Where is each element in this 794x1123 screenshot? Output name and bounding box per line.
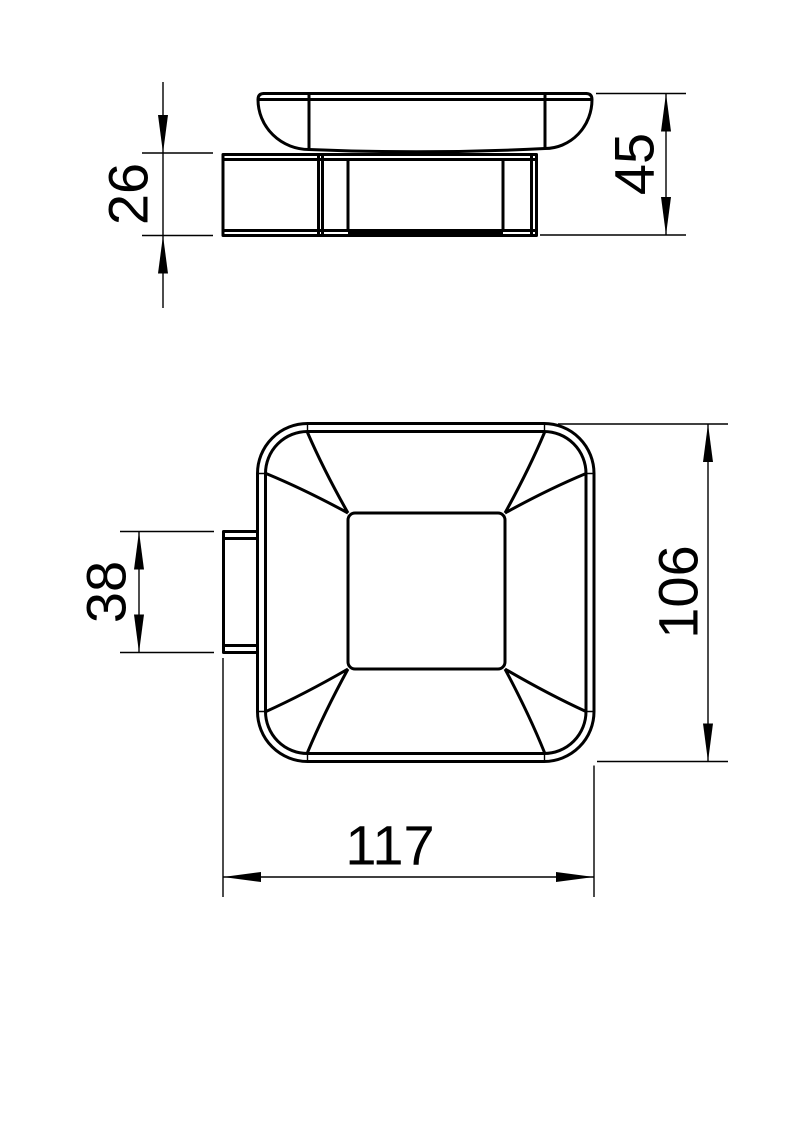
dimension-label-106: 106 <box>647 545 710 638</box>
arrowhead-icon <box>556 872 594 882</box>
mount-body-outline <box>223 155 537 236</box>
mount-tab-outline <box>224 532 258 653</box>
arrowhead-icon <box>703 424 713 462</box>
dish-bottom-curve <box>309 149 545 152</box>
bowl-corner-transitions <box>266 433 586 753</box>
dish-tangent-edges <box>309 95 545 150</box>
dish-bottom-panel <box>348 513 505 669</box>
plan-view <box>224 424 595 762</box>
dish-inner-rim <box>266 432 587 754</box>
dimension-38: 38 <box>75 532 214 653</box>
dish-left-silhouette <box>258 100 309 150</box>
arrowhead-icon <box>158 236 168 274</box>
dimension-26: 26 <box>97 82 213 308</box>
dimension-label-38: 38 <box>75 561 138 623</box>
dimension-117: 117 <box>223 658 594 897</box>
dimension-label-117: 117 <box>345 814 434 877</box>
technical-drawing: 26 45 38 106 117 <box>0 0 794 1123</box>
dimension-label-45: 45 <box>603 133 666 195</box>
dish-outer-outline <box>258 424 595 762</box>
side-view <box>223 94 592 236</box>
tangent-tick-marks <box>258 424 595 762</box>
dish-right-silhouette <box>545 100 592 149</box>
mount-inner-lines <box>223 155 537 236</box>
arrowhead-icon <box>703 724 713 762</box>
arrowhead-icon <box>661 197 671 235</box>
dimension-label-26: 26 <box>97 163 160 225</box>
arrowhead-icon <box>158 115 168 153</box>
dimension-45: 45 <box>540 94 686 236</box>
arrowhead-icon <box>223 872 261 882</box>
arrowhead-icon <box>661 94 671 132</box>
drawing-sheet: 26 45 38 106 117 <box>0 0 794 1123</box>
